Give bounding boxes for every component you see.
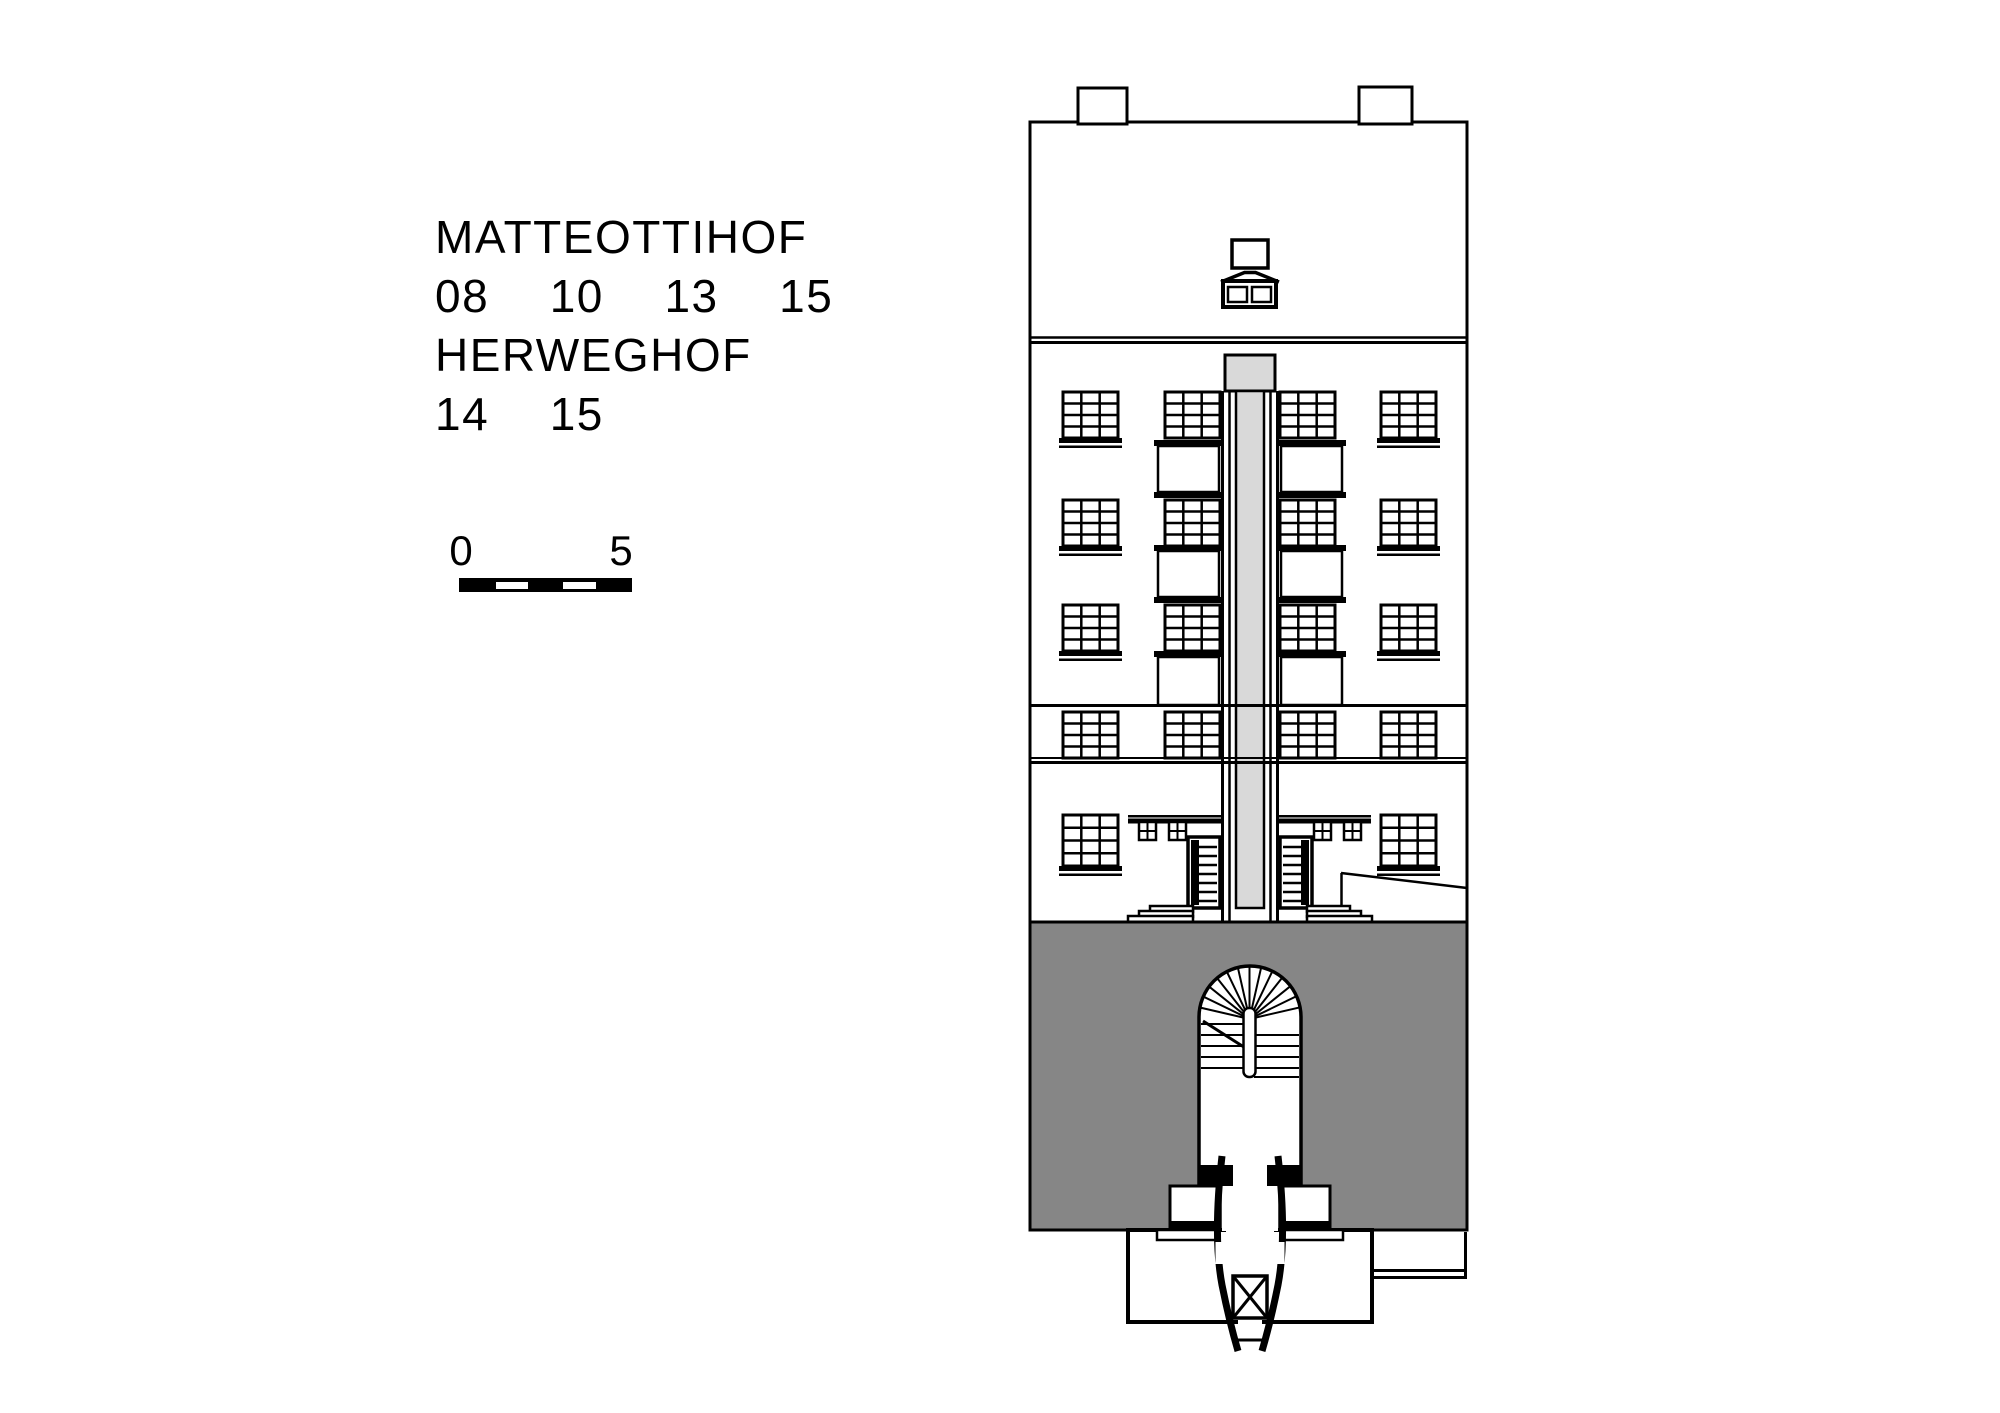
attic-window [1232, 240, 1268, 268]
stair-shaft [1223, 355, 1278, 922]
entrance-door-left [1188, 837, 1220, 908]
chimney-left [1078, 88, 1127, 124]
building-section-drawing [0, 0, 2000, 1413]
architectural-drawing-page: MATTEOTTIHOF 08 10 13 15 HERWEGHOF 14 15… [0, 0, 2000, 1413]
basement-block [1128, 1230, 1466, 1322]
chimney-right [1359, 87, 1412, 124]
stair-newel [1244, 1008, 1256, 1077]
entrance-door-right [1280, 837, 1312, 908]
